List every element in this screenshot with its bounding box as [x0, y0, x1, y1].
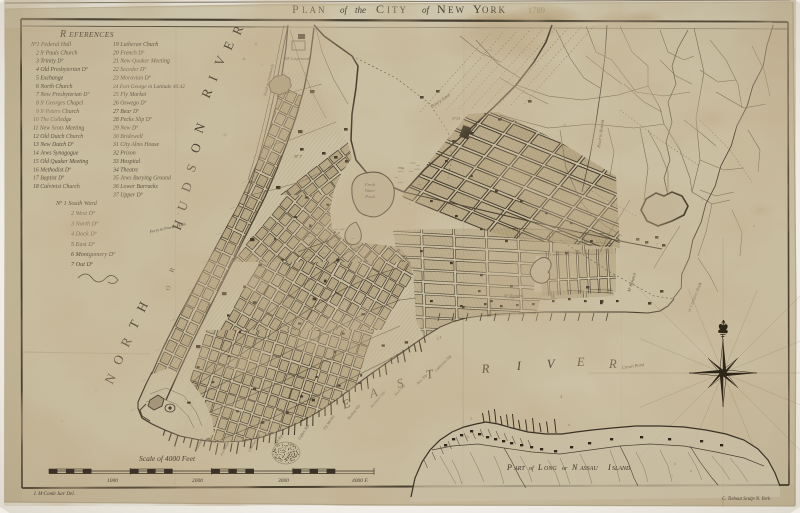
- svg-text:I. MᶜComb Junʳ Del.: I. MᶜComb Junʳ Del.: [33, 492, 75, 497]
- svg-text:or: or: [562, 466, 568, 472]
- svg-text:2000: 2000: [192, 478, 203, 484]
- svg-text:N: N: [571, 463, 578, 472]
- svg-text:C. Tiebout Sculpᵗ N. York: C. Tiebout Sculpᵗ N. York: [722, 496, 771, 502]
- svg-text:4000 F.: 4000 F.: [352, 477, 368, 484]
- svg-text:3000: 3000: [277, 478, 289, 484]
- svg-text:SLAND: SLAND: [612, 466, 631, 472]
- svg-text:ASSAU: ASSAU: [579, 466, 598, 472]
- svg-text:P: P: [506, 463, 512, 472]
- svg-text:4: 4: [560, 394, 562, 399]
- svg-text:L: L: [537, 463, 543, 472]
- svg-text:I: I: [607, 463, 611, 472]
- svg-text:1000: 1000: [107, 478, 118, 484]
- svg-text:ART: ART: [513, 466, 525, 472]
- svg-text:Scale of 4000 Feet: Scale of 4000 Feet: [139, 454, 196, 463]
- svg-text:ONG: ONG: [544, 466, 557, 472]
- svg-text:3: 3: [470, 416, 472, 421]
